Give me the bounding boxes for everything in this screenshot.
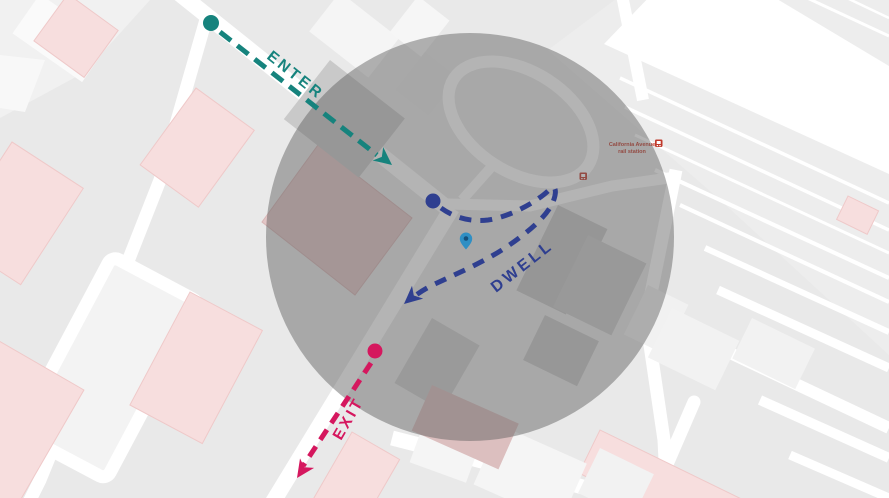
pin-center-dot: [464, 236, 469, 241]
dwell-start-dot: [426, 194, 441, 209]
rail-station-icon: [655, 140, 663, 148]
exit-start-dot: [368, 344, 383, 359]
map-base: California Avenue rail station: [0, 0, 889, 498]
map-visualization: California Avenue rail station: [0, 0, 889, 498]
enter-start-dot: [203, 15, 219, 31]
